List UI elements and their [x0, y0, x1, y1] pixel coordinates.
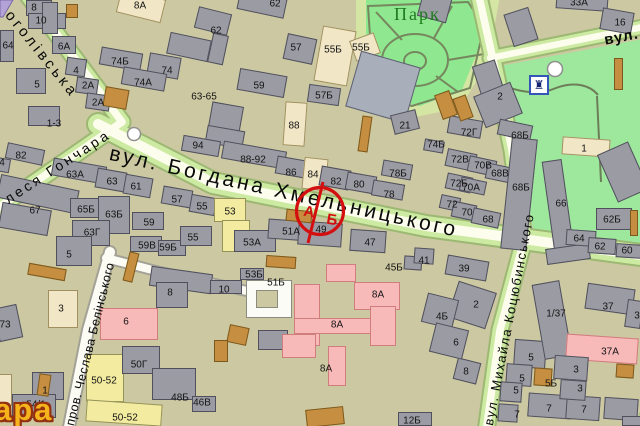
- annotation-layer: [0, 0, 640, 426]
- map-canvas[interactable]: 8108А6А6442А2А51-374Б7474А62625755Б55Б59…: [0, 0, 640, 426]
- district-label: ара: [0, 392, 53, 426]
